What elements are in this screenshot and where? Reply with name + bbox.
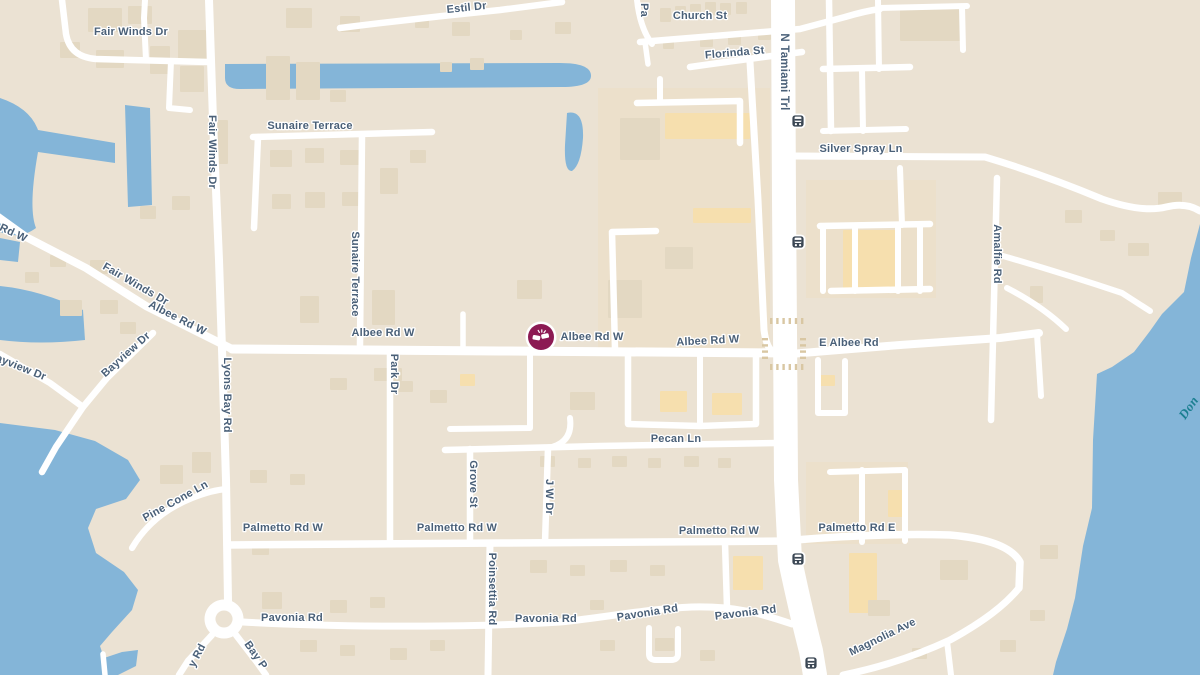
building-footprint bbox=[192, 452, 211, 473]
building-footprint bbox=[660, 8, 671, 22]
road-label: Palmetto Rd W bbox=[679, 525, 760, 537]
road bbox=[878, 6, 967, 8]
road-label: Pavonia Rd bbox=[515, 613, 577, 625]
building-footprint bbox=[736, 2, 747, 14]
bus-icon-wheel bbox=[795, 561, 797, 563]
building-footprint bbox=[370, 597, 385, 608]
road-label: Silver Spray Ln bbox=[819, 143, 902, 155]
building-footprint bbox=[305, 148, 324, 163]
building-footprint bbox=[610, 560, 627, 572]
road-label: Palmetto Rd W bbox=[417, 522, 498, 534]
building-footprint bbox=[330, 90, 346, 102]
building-footprint bbox=[286, 8, 312, 28]
building-footprint bbox=[570, 565, 585, 576]
building-footprint bbox=[340, 645, 355, 656]
building-footprint bbox=[570, 392, 595, 410]
road-label: N Tamiami Trl bbox=[778, 33, 790, 110]
building-footprint bbox=[300, 640, 317, 652]
bus-icon-wheel bbox=[795, 123, 797, 125]
road bbox=[820, 224, 930, 226]
building-footprint bbox=[1040, 545, 1058, 559]
building-footprint bbox=[718, 458, 731, 468]
crosswalk-dash bbox=[800, 344, 806, 346]
crosswalk-dash bbox=[762, 338, 768, 340]
road-label: Pa bbox=[638, 3, 650, 18]
bus-icon-wheel bbox=[812, 665, 814, 667]
bus-icon-wheel bbox=[799, 123, 801, 125]
crosswalk-dash bbox=[801, 364, 803, 370]
road bbox=[829, 0, 831, 131]
building-footprint bbox=[372, 290, 395, 325]
road-label: Pavonia Rd bbox=[261, 612, 323, 624]
bus-icon-wheel bbox=[808, 665, 810, 667]
building-footprint bbox=[820, 375, 835, 386]
building-footprint bbox=[330, 378, 347, 390]
building-footprint bbox=[590, 600, 604, 610]
crosswalk-dash bbox=[762, 344, 768, 346]
building-footprint bbox=[270, 150, 292, 167]
road bbox=[962, 7, 963, 50]
building-footprint bbox=[25, 272, 39, 283]
building-footprint bbox=[868, 600, 890, 616]
building-footprint bbox=[60, 300, 82, 316]
transit-stop-icon[interactable] bbox=[805, 657, 818, 670]
bus-icon-wheel bbox=[795, 244, 797, 246]
road bbox=[947, 641, 951, 675]
building-footprint bbox=[693, 208, 751, 223]
building-footprint bbox=[430, 640, 445, 651]
crosswalk-dash bbox=[789, 318, 791, 324]
crosswalk-dash bbox=[795, 318, 797, 324]
transit-stop-icon[interactable] bbox=[792, 236, 805, 249]
building-footprint bbox=[266, 56, 290, 100]
crosswalk-dash bbox=[762, 350, 768, 352]
building-footprint bbox=[262, 592, 282, 609]
building-footprint bbox=[1100, 230, 1115, 241]
building-footprint bbox=[733, 556, 763, 590]
building-footprint bbox=[305, 192, 325, 208]
road-label: Park Dr bbox=[388, 354, 400, 395]
building-footprint bbox=[290, 474, 305, 485]
building-footprint bbox=[100, 300, 118, 314]
crosswalk-dash bbox=[800, 350, 806, 352]
transit-stop-icon[interactable] bbox=[792, 553, 805, 566]
road bbox=[830, 470, 905, 472]
building-footprint bbox=[430, 390, 447, 403]
road bbox=[645, 42, 648, 64]
road-label: Pecan Ln bbox=[651, 433, 702, 445]
road bbox=[900, 168, 902, 225]
crosswalk-dash bbox=[782, 364, 784, 370]
road-label: Poinsettia Rd bbox=[486, 553, 498, 626]
building-footprint bbox=[128, 6, 152, 24]
building-footprint bbox=[120, 322, 136, 334]
building-footprint bbox=[140, 206, 156, 219]
bus-icon-window bbox=[795, 119, 802, 121]
building-footprint bbox=[612, 456, 627, 467]
building-footprint bbox=[517, 280, 542, 299]
map-canvas[interactable]: Fair Winds DrFair Winds DrSunaire Terrac… bbox=[0, 0, 1200, 675]
building-footprint bbox=[470, 58, 484, 70]
road-label: Sunaire Terrace bbox=[267, 120, 352, 132]
crosswalk-dash bbox=[801, 318, 803, 324]
building-footprint bbox=[600, 640, 615, 651]
incident-marker-bg bbox=[528, 324, 554, 350]
road-label: Albee Rd W bbox=[560, 331, 624, 343]
road bbox=[254, 137, 258, 228]
road bbox=[232, 349, 790, 353]
transit-stop-icon[interactable] bbox=[792, 115, 805, 128]
crosswalk-dash bbox=[776, 364, 778, 370]
road-label: Grove St bbox=[467, 460, 479, 508]
building-footprint bbox=[712, 393, 742, 415]
road-label: Albee Rd W bbox=[351, 327, 415, 339]
building-footprint bbox=[648, 458, 661, 468]
building-footprint bbox=[660, 391, 687, 412]
building-footprint bbox=[1065, 210, 1082, 223]
building-footprint bbox=[296, 62, 320, 100]
building-footprint bbox=[1128, 243, 1149, 256]
road-label: Lyons Bay Rd bbox=[221, 357, 233, 432]
building-footprint bbox=[650, 565, 665, 576]
building-footprint bbox=[578, 458, 591, 468]
road bbox=[103, 654, 105, 675]
crosswalk-dash bbox=[770, 318, 772, 324]
building-footprint bbox=[555, 22, 571, 34]
bus-icon-window bbox=[795, 240, 802, 242]
building-footprint bbox=[843, 230, 897, 288]
crosswalk-dash bbox=[800, 338, 806, 340]
building-footprint bbox=[300, 296, 319, 323]
map[interactable]: Fair Winds DrFair Winds DrSunaire Terrac… bbox=[0, 0, 1200, 675]
road-label: J W Dr bbox=[543, 479, 555, 516]
road-label: Palmetto Rd W bbox=[243, 522, 324, 534]
building-footprint bbox=[665, 247, 693, 269]
building-footprint bbox=[1000, 640, 1016, 652]
building-footprint bbox=[342, 192, 359, 206]
building-footprint bbox=[620, 118, 660, 160]
building-footprint bbox=[700, 650, 715, 661]
crosswalk-dash bbox=[789, 364, 791, 370]
road-label: Fair Winds Dr bbox=[94, 26, 169, 38]
crosswalk-dash bbox=[770, 364, 772, 370]
bus-icon-wheel bbox=[799, 561, 801, 563]
crosswalk-dash bbox=[762, 357, 768, 359]
building-footprint bbox=[655, 638, 674, 651]
building-footprint bbox=[940, 560, 968, 580]
building-footprint bbox=[530, 560, 547, 573]
building-footprint bbox=[900, 8, 960, 41]
road bbox=[862, 69, 863, 131]
bus-icon-window bbox=[795, 557, 802, 559]
crosswalk-dash bbox=[795, 364, 797, 370]
road-label: Amalfie Rd bbox=[991, 224, 1003, 283]
water-body bbox=[125, 105, 152, 207]
road bbox=[823, 67, 910, 69]
road-label: Palmetto Rd E bbox=[818, 522, 895, 534]
building-footprint bbox=[684, 456, 699, 467]
road-label: Fair Winds Dr bbox=[206, 115, 218, 190]
building-footprint bbox=[180, 66, 204, 92]
road-label: E Albee Rd bbox=[819, 337, 879, 349]
crosswalk-dash bbox=[782, 318, 784, 324]
building-footprint bbox=[160, 465, 183, 484]
bus-icon-wheel bbox=[799, 244, 801, 246]
road bbox=[1037, 334, 1041, 396]
building-footprint bbox=[410, 150, 426, 163]
road bbox=[227, 541, 792, 545]
building-footprint bbox=[452, 22, 470, 36]
incident-marker-icon[interactable] bbox=[526, 322, 557, 353]
building-footprint bbox=[1030, 610, 1045, 621]
road bbox=[831, 289, 930, 291]
building-footprint bbox=[340, 150, 359, 165]
building-footprint bbox=[440, 62, 452, 72]
building-footprint bbox=[390, 648, 407, 660]
building-footprint bbox=[272, 194, 291, 209]
road bbox=[725, 543, 727, 607]
building-footprint bbox=[330, 600, 347, 613]
building-footprint bbox=[178, 30, 206, 60]
building-footprint bbox=[510, 30, 522, 40]
building-footprint bbox=[250, 470, 267, 483]
building-footprint bbox=[460, 374, 475, 386]
crosswalk-dash bbox=[776, 318, 778, 324]
building-footprint bbox=[172, 196, 190, 210]
road bbox=[823, 129, 906, 131]
crosswalk-dash bbox=[800, 357, 806, 359]
building-footprint bbox=[380, 168, 398, 194]
road-label: Church St bbox=[673, 10, 727, 22]
road-label: Sunaire Terrace bbox=[349, 231, 361, 316]
bus-icon-window bbox=[808, 661, 815, 663]
